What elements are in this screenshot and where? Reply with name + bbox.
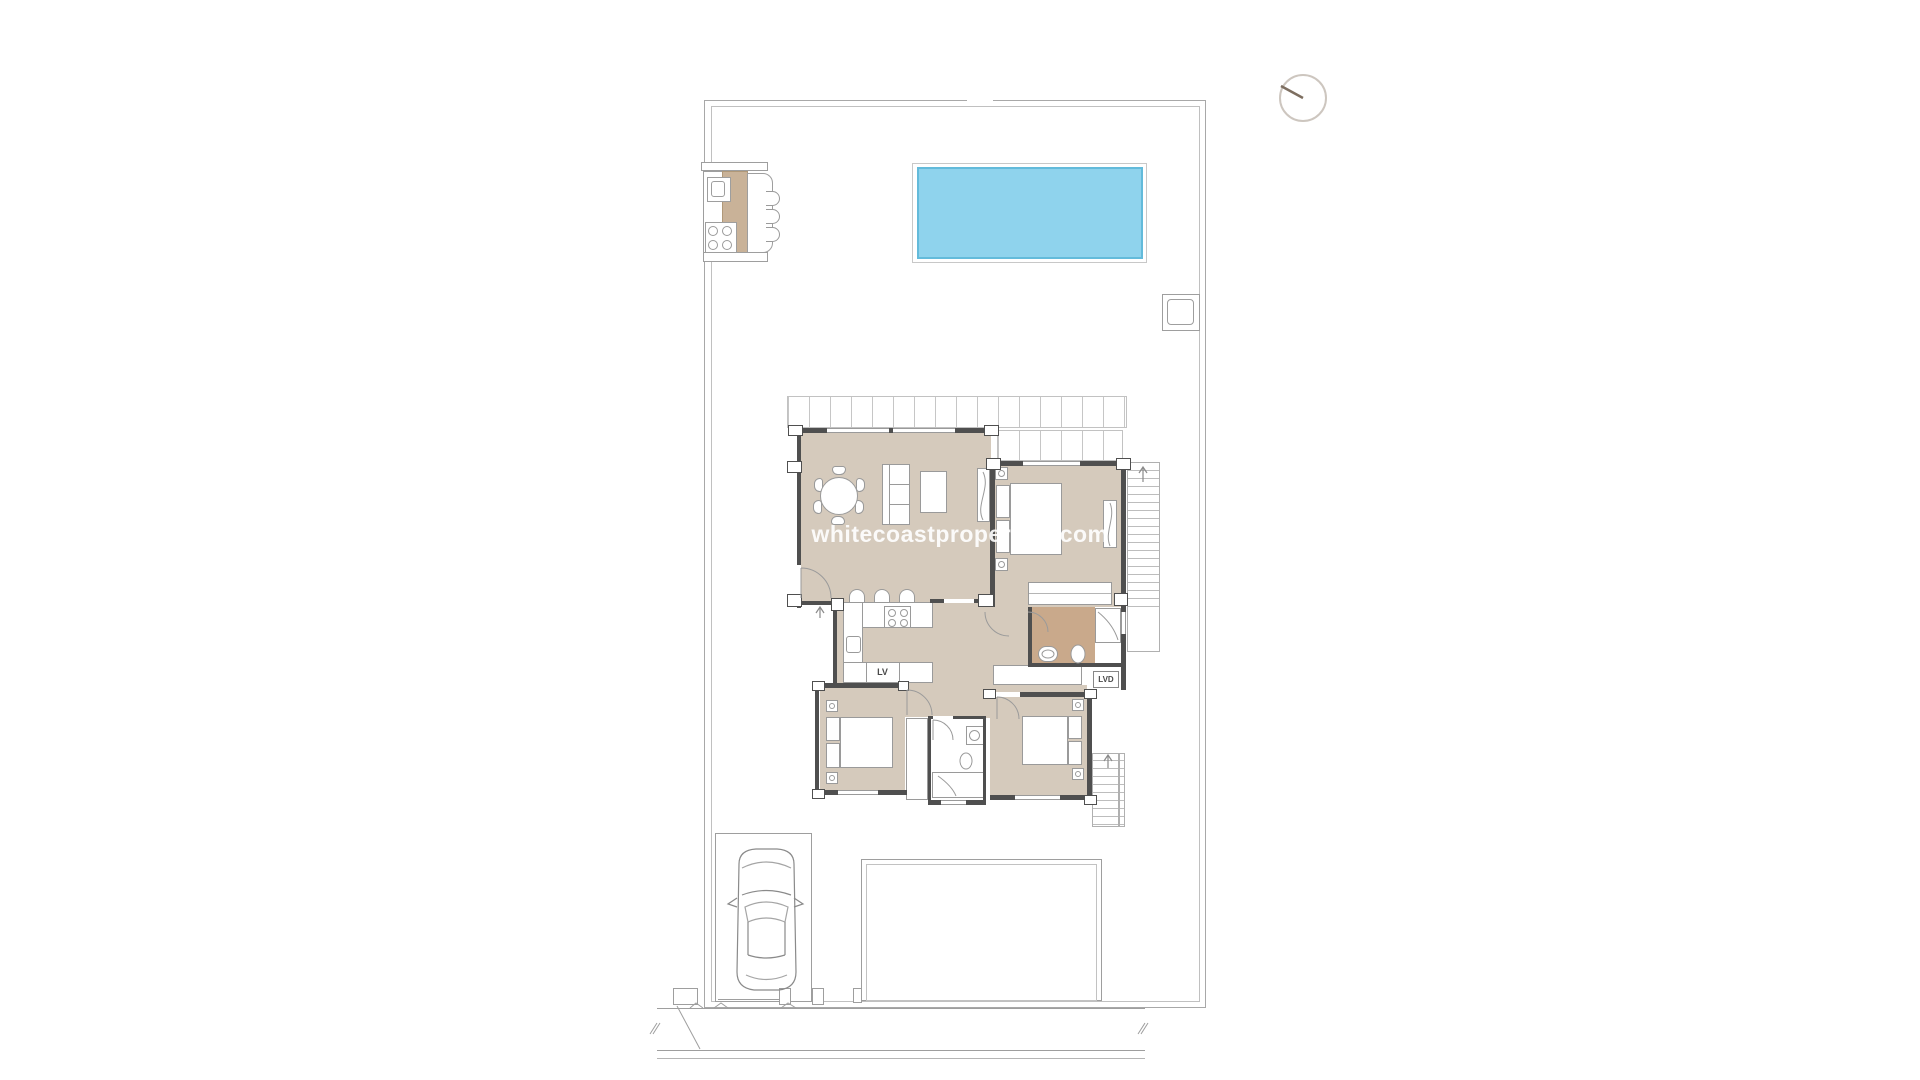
pillar	[788, 425, 803, 436]
pillar	[984, 425, 999, 436]
door-gap-entrance	[797, 565, 801, 597]
pillar	[1114, 593, 1128, 606]
sofa-cushion-line	[890, 504, 909, 505]
wall-bedroom2-top	[815, 683, 907, 688]
wall-bedroom3-right	[1087, 692, 1092, 802]
bedroom3-bed	[1022, 716, 1068, 765]
north-indicator-icon	[1279, 74, 1327, 122]
sofa-backrest-line	[889, 465, 890, 524]
lamp-circle	[829, 703, 835, 709]
hall-closet	[906, 718, 928, 800]
pillar	[1084, 689, 1097, 699]
dining-chair	[856, 478, 865, 492]
outdoor-shower-tray	[1167, 299, 1194, 325]
street-bottom-line-2	[657, 1058, 1145, 1059]
fence-post	[779, 988, 791, 1005]
door-gap-corridor	[944, 599, 974, 603]
outdoor-sink-basin	[711, 181, 725, 197]
pillar	[1116, 458, 1131, 470]
bedroom3-headboard	[1068, 716, 1082, 739]
counter-divider	[899, 663, 900, 682]
bedroom2-bed	[840, 717, 893, 768]
window-leaf-panel	[977, 468, 990, 522]
wall-left-kitchen	[833, 601, 837, 685]
dishwasher-label: LV	[866, 667, 899, 677]
wall-master-right	[1121, 462, 1126, 690]
master-bed-headboard	[996, 485, 1010, 518]
window-master-top	[1023, 461, 1080, 466]
floor-plan-page: { "watermark": { "text": "whitecoastprop…	[0, 0, 1920, 1080]
window-bathroom2	[941, 800, 966, 805]
island-stool	[899, 589, 915, 602]
watermark-text: whitecoastproperties.com	[805, 521, 1115, 548]
street-top-line	[657, 1008, 1145, 1009]
lamp-circle	[1075, 771, 1081, 777]
pillar	[1084, 795, 1097, 805]
pillar	[831, 598, 844, 611]
hob-burner	[900, 619, 908, 627]
hob-burner	[888, 619, 896, 627]
street-bottom-line-1	[657, 1050, 1145, 1051]
pergola-slats-right	[997, 430, 1123, 461]
sofa-cushion-line	[890, 484, 909, 485]
island-stool	[849, 589, 865, 602]
street-marks	[650, 1003, 1148, 1049]
window-bedroom2	[838, 790, 878, 795]
pillar	[898, 681, 909, 691]
pillar	[986, 458, 1001, 470]
island-stool	[874, 589, 890, 602]
pillar	[787, 594, 802, 607]
outdoor-hob-burner	[722, 226, 732, 236]
fence-post	[853, 988, 862, 1003]
stairs-south-rail	[1118, 753, 1120, 827]
pillar	[787, 461, 802, 473]
bedroom2-headboard	[826, 717, 840, 741]
lamp-circle	[1075, 702, 1081, 708]
carport-entry-line	[718, 999, 780, 1000]
bedroom3-headboard	[1068, 741, 1082, 765]
carport	[715, 833, 812, 1002]
closet-line	[1029, 593, 1111, 594]
wall-bathroom2-left	[928, 716, 931, 803]
ensuite-sink	[1038, 646, 1058, 662]
window-ensuite	[1121, 612, 1126, 634]
outdoor-hob-burner	[722, 240, 732, 250]
lamp-circle	[998, 561, 1005, 568]
lamp-circle	[998, 470, 1005, 477]
outdoor-hob-burner	[708, 240, 718, 250]
dining-chair	[832, 466, 846, 475]
door-gap-bedroom3	[996, 692, 1020, 697]
hob-burner	[888, 609, 896, 617]
hob-burner	[900, 609, 908, 617]
pergola-slats-top	[787, 396, 1127, 428]
wall-ensuite-left	[1028, 607, 1032, 665]
pillar	[812, 681, 825, 691]
swimming-pool	[917, 167, 1143, 259]
kitchen-sink	[846, 636, 861, 653]
stairs-east-steps	[1128, 470, 1159, 612]
ensuite-shower	[1095, 608, 1121, 643]
pillar	[978, 594, 994, 607]
wall-bathroom2-right	[983, 716, 986, 803]
window-bedroom3	[1015, 795, 1060, 800]
bedroom2-headboard	[826, 743, 840, 768]
bathroom2-shower	[932, 772, 984, 798]
sink-basin	[969, 730, 980, 741]
plot-gate-gap	[967, 99, 993, 102]
laundry-label: LVD	[1093, 675, 1119, 684]
outdoor-kitchen-top-counter	[701, 162, 768, 171]
bedroom3-closet	[993, 665, 1082, 685]
window-living-top-2	[893, 428, 955, 433]
door-gap-bathroom2	[933, 716, 953, 719]
sofa	[882, 464, 910, 525]
wall-ensuite-bottom	[1028, 663, 1125, 667]
pillar	[983, 689, 996, 699]
gate-post	[673, 988, 698, 1005]
coffee-table	[920, 471, 947, 513]
wall-bedroom2-left	[815, 683, 819, 795]
outdoor-hob-burner	[708, 226, 718, 236]
lamp-circle	[829, 775, 835, 781]
dining-table	[820, 477, 858, 515]
fence-post	[812, 988, 824, 1005]
terrace-inner-line	[866, 864, 1097, 1001]
pillar	[812, 789, 825, 799]
window-living-top-1	[827, 428, 889, 433]
outdoor-kitchen-bottom-counter	[703, 252, 768, 262]
